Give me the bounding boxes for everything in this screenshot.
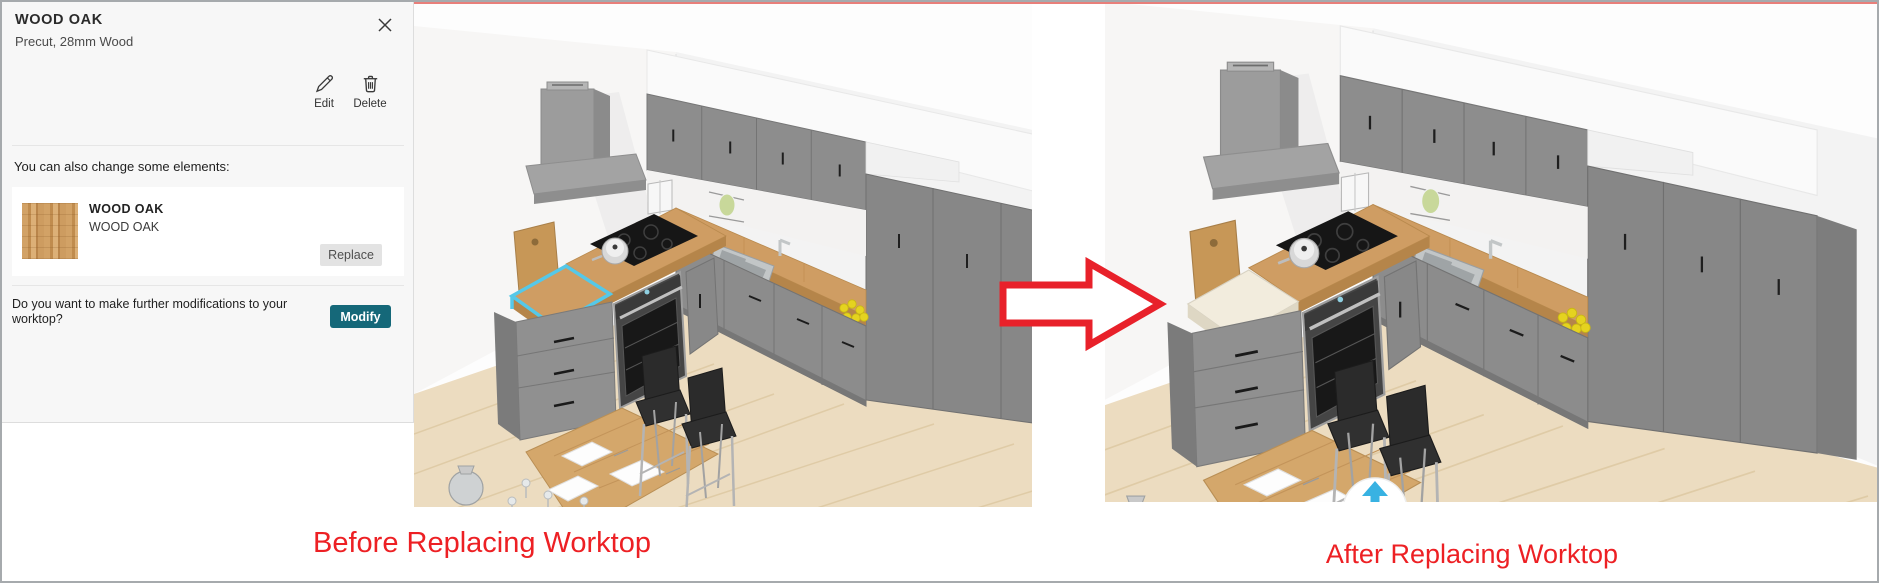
panel-title: WOOD OAK (15, 12, 103, 28)
worktop-properties-panel: WOOD OAK Precut, 28mm Wood Edit Delete (2, 2, 414, 423)
edit-label: Edit (304, 98, 344, 110)
close-panel-button[interactable] (372, 12, 398, 38)
element-card: WOOD OAK WOOD OAK Replace (12, 187, 404, 276)
change-elements-hint: You can also change some elements: (14, 159, 230, 174)
close-icon (377, 17, 393, 33)
element-name: WOOD OAK (89, 202, 164, 216)
divider (12, 145, 404, 146)
modify-button[interactable]: Modify (330, 305, 391, 328)
replace-button[interactable]: Replace (320, 244, 382, 266)
screenshot-root: WOOD OAK Precut, 28mm Wood Edit Delete (0, 0, 1879, 583)
divider (12, 285, 404, 286)
trash-icon (359, 72, 382, 95)
before-caption: Before Replacing Worktop (282, 527, 682, 560)
modify-question: Do you want to make further modification… (12, 297, 292, 327)
before-render-viewport[interactable] (414, 4, 1032, 507)
delete-label: Delete (350, 98, 390, 110)
panel-subtitle: Precut, 28mm Wood (15, 34, 133, 49)
red-arrow-annotation (997, 257, 1167, 352)
wood-oak-swatch (22, 203, 78, 259)
after-caption: After Replacing Worktop (1272, 539, 1672, 570)
pencil-icon (313, 72, 336, 95)
after-render-viewport[interactable] (1105, 4, 1879, 502)
element-description: WOOD OAK (89, 220, 159, 234)
edit-button[interactable]: Edit (304, 72, 344, 110)
delete-button[interactable]: Delete (350, 72, 390, 110)
